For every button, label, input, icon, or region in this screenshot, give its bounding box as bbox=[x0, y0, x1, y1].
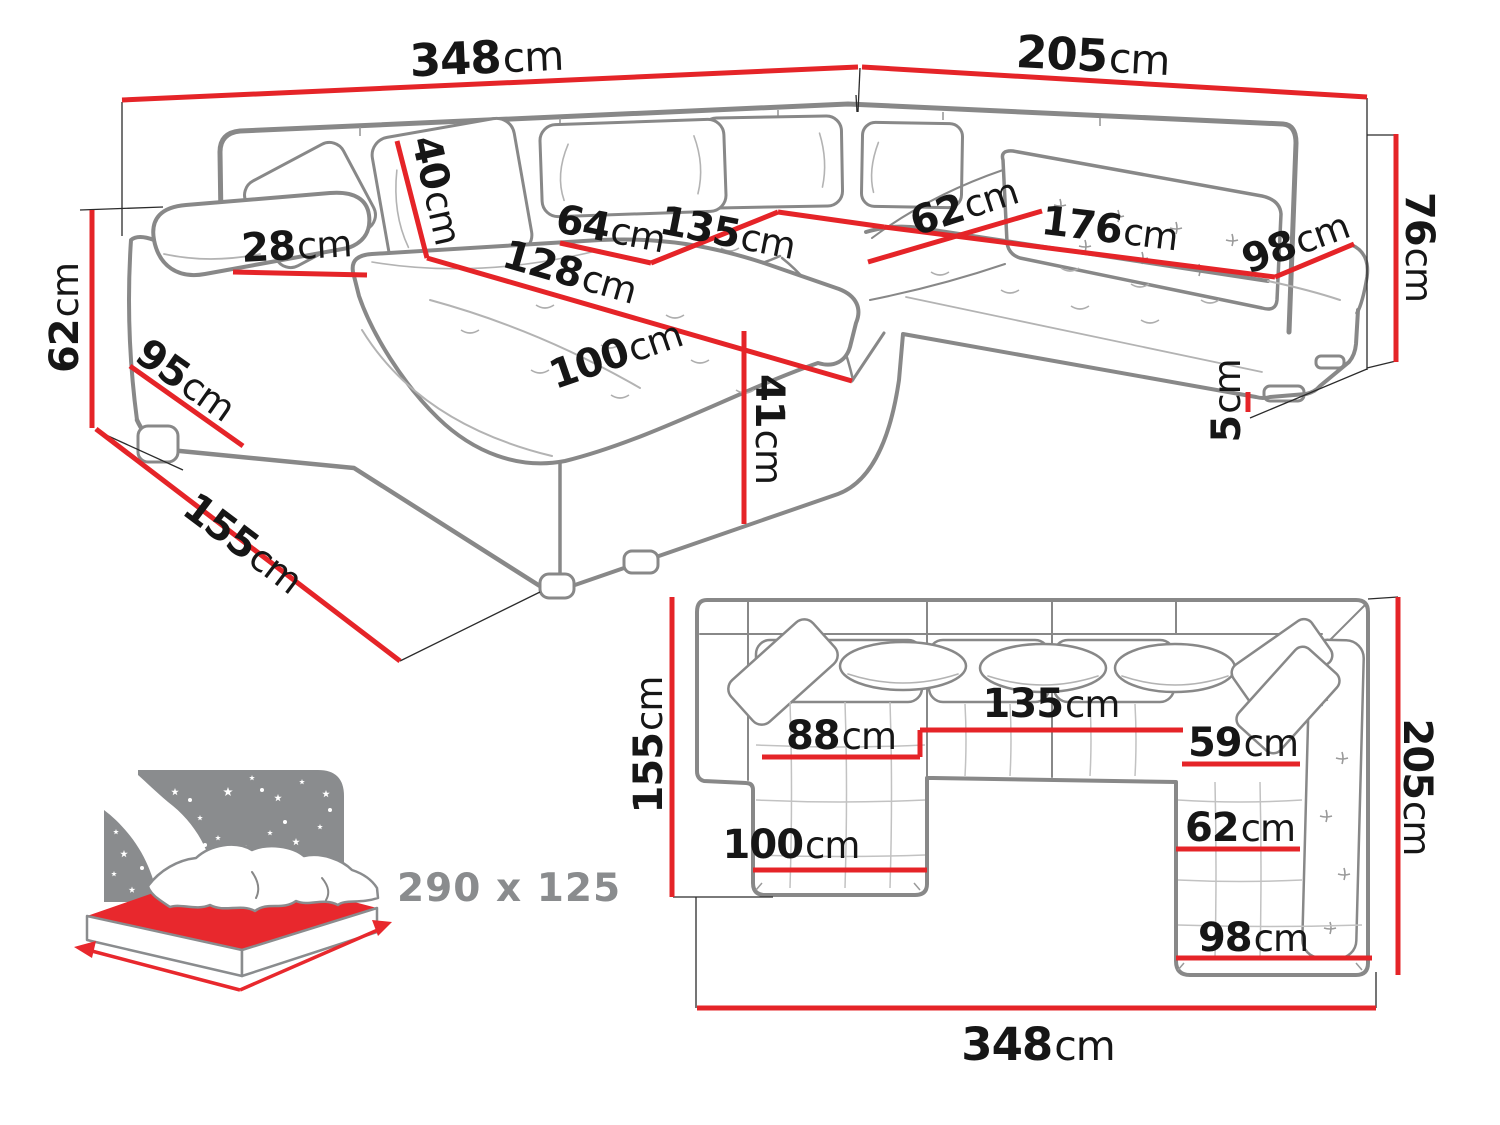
sofa-leg bbox=[138, 426, 178, 462]
armrest-front-edge bbox=[129, 237, 154, 420]
back-corner-seam bbox=[856, 95, 857, 112]
dimension-label-205: 205cm bbox=[1015, 25, 1171, 86]
plan-label-88: 88cm bbox=[786, 713, 896, 759]
dimension-label-155: 155cm bbox=[174, 484, 311, 603]
dimension-label-41: 41cm bbox=[746, 374, 792, 484]
floor-line bbox=[400, 592, 540, 661]
plan-label-62: 62cm bbox=[1185, 805, 1295, 851]
plan-pillow bbox=[840, 642, 966, 690]
star-dot bbox=[188, 798, 192, 802]
sofa-leg bbox=[624, 551, 658, 573]
extension-line bbox=[1368, 597, 1398, 599]
sleeping-size-label: 290 x 125 bbox=[397, 866, 621, 911]
plan-label-59: 59cm bbox=[1188, 720, 1298, 766]
plan-label-348: 348cm bbox=[961, 1018, 1114, 1071]
dimension-label-95: 95cm bbox=[127, 330, 244, 431]
tuft-mark bbox=[1201, 300, 1219, 303]
sofa-leg bbox=[540, 574, 574, 598]
plan-view: 155cm 88cm 135cm 59cm 62cm 100cm 98cm 20… bbox=[626, 597, 1440, 1071]
dimension-label-5: 5cm bbox=[1204, 359, 1250, 442]
arrow-head-icon bbox=[74, 941, 96, 958]
perspective-view: 348cm 205cm 62cm 95cm 155cm 28cm 40cm 64… bbox=[42, 25, 1442, 661]
dimension-line-28 bbox=[233, 272, 367, 275]
sleeping-function-icon: 290 x 125 bbox=[74, 770, 621, 990]
tuft-mark bbox=[1141, 320, 1159, 323]
plan-pillow bbox=[1115, 644, 1235, 692]
sofa-leg bbox=[1316, 356, 1344, 368]
star-dot bbox=[328, 808, 332, 812]
star-dot bbox=[260, 788, 264, 792]
plan-label-205: 205cm bbox=[1394, 719, 1440, 856]
diagram-canvas: 348cm 205cm 62cm 95cm 155cm 28cm 40cm 64… bbox=[0, 0, 1500, 1125]
star-dot bbox=[140, 866, 144, 870]
plan-label-135: 135cm bbox=[983, 681, 1120, 727]
plan-label-100: 100cm bbox=[723, 822, 860, 868]
star-dot bbox=[283, 820, 287, 824]
plan-label-155: 155cm bbox=[626, 677, 672, 814]
plan-label-98: 98cm bbox=[1198, 915, 1308, 961]
corner-seat-seam bbox=[870, 264, 1005, 300]
dimension-label-76: 76cm bbox=[1396, 192, 1442, 302]
right-seat-end-cap bbox=[1352, 245, 1367, 313]
star-dot bbox=[203, 843, 207, 847]
star-icon bbox=[165, 839, 171, 844]
extension-line bbox=[1367, 361, 1396, 368]
furniture-dimension-diagram: 348cm 205cm 62cm 95cm 155cm 28cm 40cm 64… bbox=[0, 0, 1500, 1125]
dimension-label-348: 348cm bbox=[409, 28, 565, 88]
tuft-mark bbox=[931, 272, 949, 275]
tuft-mark bbox=[1071, 306, 1089, 309]
tuft-mark bbox=[1001, 290, 1019, 293]
dimension-label-62-left: 62cm bbox=[42, 263, 88, 373]
corner-base-edge bbox=[852, 333, 884, 381]
